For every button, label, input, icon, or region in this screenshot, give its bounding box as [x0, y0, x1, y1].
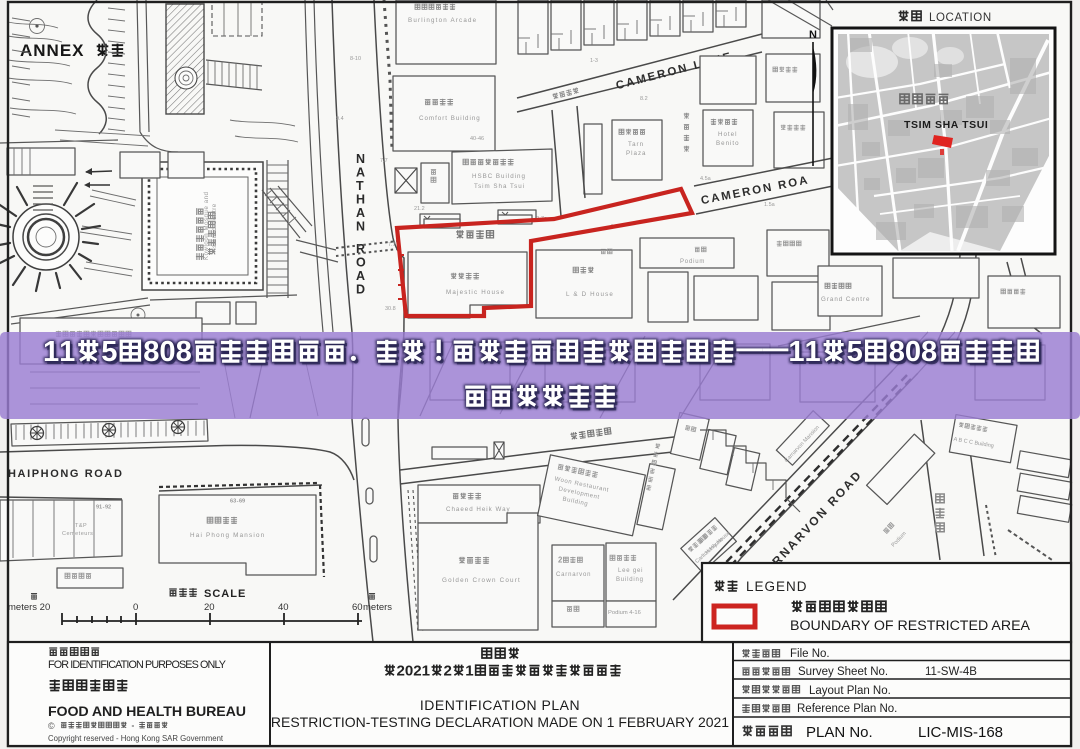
- svg-text:9.4: 9.4: [336, 116, 344, 122]
- svg-text:5: 5: [101, 336, 117, 368]
- svg-text:40-46: 40-46: [470, 136, 484, 142]
- svg-text:2: 2: [413, 663, 421, 680]
- svg-text:A: A: [356, 206, 365, 220]
- svg-text:Cemeteurs: Cemeteurs: [62, 531, 93, 537]
- svg-text:Majestic House: Majestic House: [446, 289, 505, 296]
- svg-text:-: -: [132, 720, 135, 730]
- svg-text:Burlington Arcade: Burlington Arcade: [408, 17, 477, 24]
- svg-text:8: 8: [921, 336, 937, 368]
- svg-text:1: 1: [422, 663, 430, 680]
- svg-text:Podium: Podium: [680, 259, 705, 265]
- svg-text:TSIM SHA TSUI: TSIM SHA TSUI: [904, 119, 988, 131]
- svg-text:Golden Crown Court: Golden Crown Court: [442, 577, 521, 584]
- svg-text:SCALE: SCALE: [204, 588, 246, 600]
- svg-text:T&P: T&P: [75, 523, 87, 529]
- svg-text:T: T: [356, 179, 364, 193]
- svg-text:20: 20: [204, 602, 215, 613]
- svg-text:8: 8: [889, 336, 905, 368]
- svg-text:FOOD AND HEALTH BUREAU: FOOD AND HEALTH BUREAU: [48, 704, 246, 720]
- svg-text:5: 5: [847, 336, 863, 368]
- svg-text:8-10: 8-10: [350, 56, 361, 62]
- svg-text:Building: Building: [616, 577, 644, 583]
- svg-text:60: 60: [352, 602, 363, 613]
- svg-text:11-SW-4B: 11-SW-4B: [925, 666, 977, 678]
- svg-text:H: H: [356, 193, 365, 207]
- svg-text:2: 2: [443, 663, 451, 680]
- svg-text:8: 8: [176, 336, 192, 368]
- svg-text:Layout Plan No.: Layout Plan No.: [809, 685, 891, 697]
- svg-text:4.5a: 4.5a: [700, 176, 712, 182]
- svg-text:2: 2: [558, 556, 563, 565]
- svg-text:IDENTIFICATION PLAN: IDENTIFICATION PLAN: [420, 697, 580, 713]
- svg-text:Kowloon Mosque and: Kowloon Mosque and: [204, 191, 210, 260]
- svg-text:meters: meters: [363, 602, 392, 613]
- svg-text:LOCATION: LOCATION: [929, 12, 992, 24]
- svg-text:Hotel: Hotel: [718, 131, 737, 138]
- svg-text:30.8: 30.8: [385, 306, 396, 312]
- svg-text:FOR IDENTIFICATION PURPOSES ON: FOR IDENTIFICATION PURPOSES ONLY: [48, 659, 226, 671]
- svg-text:1: 1: [805, 336, 821, 368]
- svg-text:Chaeed Heik Way: Chaeed Heik Way: [446, 506, 511, 513]
- svg-text:N: N: [356, 220, 365, 234]
- svg-text:0: 0: [133, 602, 138, 613]
- svg-text:Islamic Centre: Islamic Centre: [212, 203, 218, 250]
- svg-text:9: 9: [242, 499, 245, 505]
- svg-text:HAIPHONG ROAD: HAIPHONG ROAD: [8, 468, 124, 480]
- svg-text:Plaza: Plaza: [626, 150, 646, 157]
- svg-text:1.5a: 1.5a: [764, 202, 776, 208]
- svg-text:1: 1: [43, 336, 59, 368]
- svg-text:O: O: [356, 256, 366, 270]
- svg-text:7.7: 7.7: [380, 158, 388, 164]
- svg-text:Podium 4-16: Podium 4-16: [608, 610, 641, 616]
- svg-text:Tsim Sha Tsui: Tsim Sha Tsui: [474, 183, 525, 190]
- svg-text:File No.: File No.: [790, 648, 830, 660]
- svg-text:40: 40: [278, 602, 289, 613]
- svg-text:1: 1: [59, 336, 75, 368]
- svg-text:Benito: Benito: [716, 140, 740, 147]
- svg-text:RESTRICTION-TESTING DECLARATIO: RESTRICTION-TESTING DECLARATION MADE ON …: [271, 714, 729, 730]
- svg-text:©: ©: [48, 721, 55, 731]
- svg-text:8: 8: [143, 336, 159, 368]
- svg-text:2: 2: [108, 505, 111, 511]
- svg-text:8.2: 8.2: [640, 96, 648, 102]
- svg-text:PLAN No.: PLAN No.: [806, 724, 873, 741]
- svg-text:HSBC Building: HSBC Building: [472, 173, 526, 180]
- svg-text:L & D House: L & D House: [566, 291, 614, 298]
- svg-text:Tarn: Tarn: [628, 141, 644, 148]
- svg-text:meters 20: meters 20: [8, 602, 50, 613]
- svg-text:0: 0: [159, 336, 175, 368]
- svg-text:A: A: [356, 166, 365, 180]
- svg-text:Lee gei: Lee gei: [618, 568, 643, 574]
- svg-text:N: N: [356, 152, 365, 166]
- svg-text:BOUNDARY OF RESTRICTED AREA: BOUNDARY OF RESTRICTED AREA: [790, 618, 1031, 634]
- svg-text:7.7: 7.7: [388, 242, 396, 248]
- svg-text:Survey Sheet No.: Survey Sheet No.: [798, 666, 888, 678]
- svg-text:N: N: [809, 29, 817, 41]
- svg-text:1: 1: [465, 663, 473, 680]
- svg-text:Hai Phong Mansion: Hai Phong Mansion: [190, 532, 265, 539]
- svg-text:1: 1: [788, 336, 804, 368]
- svg-text:A: A: [356, 269, 365, 283]
- svg-text:2: 2: [396, 663, 404, 680]
- svg-text:D: D: [356, 283, 365, 297]
- svg-text:Reference Plan No.: Reference Plan No.: [797, 703, 897, 715]
- svg-text:Grand Centre: Grand Centre: [821, 296, 871, 303]
- svg-text:0: 0: [405, 663, 413, 680]
- svg-text:21.2: 21.2: [414, 206, 425, 212]
- svg-text:Comfort Building: Comfort Building: [419, 115, 481, 122]
- svg-text:0: 0: [905, 336, 921, 368]
- svg-text:LEGEND: LEGEND: [746, 579, 808, 594]
- svg-text:1-3: 1-3: [590, 58, 598, 64]
- svg-text:Copyright reserved - Hong Kong: Copyright reserved - Hong Kong SAR Gover…: [48, 734, 224, 743]
- svg-text:Carnarvon: Carnarvon: [556, 572, 591, 578]
- svg-text:LIC-MIS-168: LIC-MIS-168: [918, 724, 1003, 741]
- svg-text:ANNEX: ANNEX: [20, 41, 85, 60]
